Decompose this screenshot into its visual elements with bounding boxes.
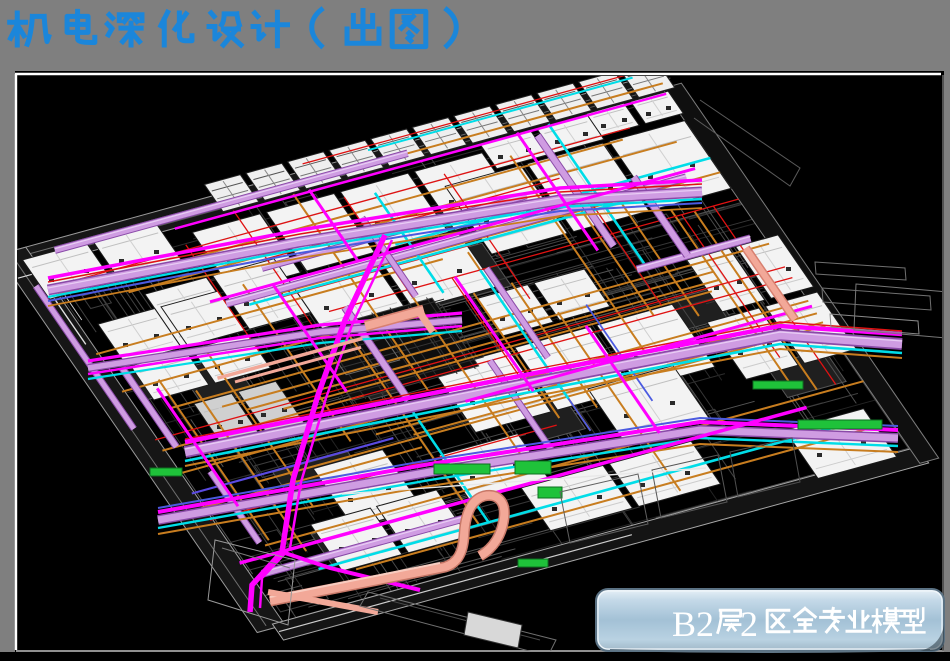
svg-text:2: 2 (740, 604, 758, 644)
svg-text:B2: B2 (672, 604, 714, 644)
